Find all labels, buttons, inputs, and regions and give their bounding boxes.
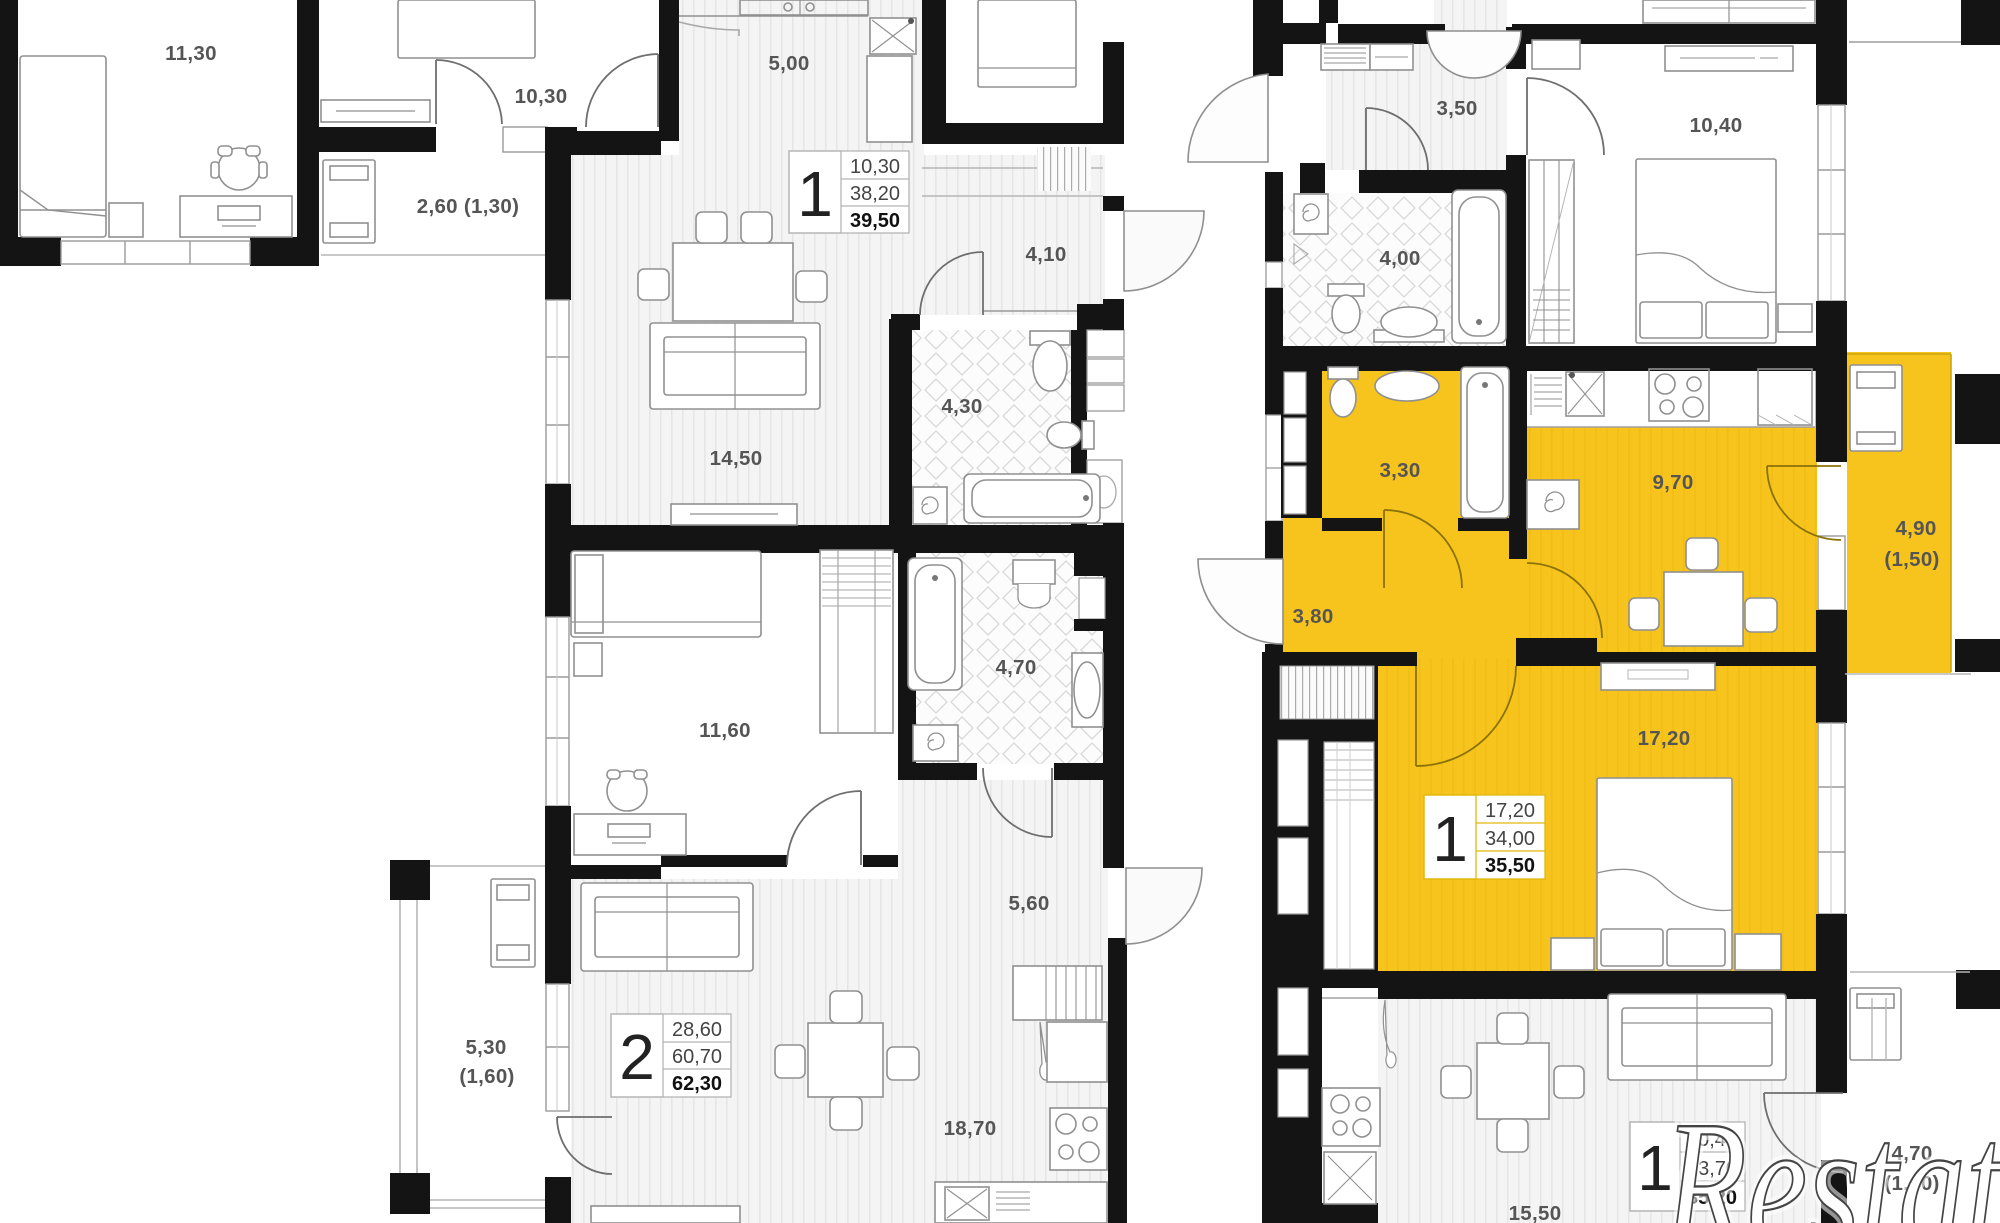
svg-text:1: 1 bbox=[797, 158, 833, 230]
svg-text:11,60: 11,60 bbox=[699, 719, 751, 742]
svg-text:35,50: 35,50 bbox=[1485, 855, 1535, 877]
svg-text:5,00: 5,00 bbox=[768, 52, 809, 75]
svg-text:60,70: 60,70 bbox=[672, 1046, 722, 1068]
svg-text:2,60 (1,30): 2,60 (1,30) bbox=[417, 195, 519, 218]
svg-text:(1,50): (1,50) bbox=[1884, 548, 1939, 571]
svg-text:9,70: 9,70 bbox=[1652, 471, 1693, 494]
svg-text:4,10: 4,10 bbox=[1025, 243, 1066, 266]
svg-text:15,50: 15,50 bbox=[1509, 1202, 1562, 1223]
svg-text:10,30: 10,30 bbox=[515, 85, 568, 108]
svg-text:34,00: 34,00 bbox=[1485, 828, 1535, 850]
svg-text:Restate: Restate bbox=[1663, 1083, 2000, 1223]
svg-text:38,20: 38,20 bbox=[850, 183, 900, 205]
svg-text:5,30: 5,30 bbox=[465, 1036, 506, 1059]
svg-text:10,40: 10,40 bbox=[1690, 114, 1743, 137]
svg-text:62,30: 62,30 bbox=[672, 1073, 722, 1095]
svg-text:3,80: 3,80 bbox=[1292, 605, 1333, 628]
svg-text:4,90: 4,90 bbox=[1895, 517, 1936, 540]
svg-text:4,00: 4,00 bbox=[1379, 247, 1420, 270]
svg-text:(1,60): (1,60) bbox=[459, 1065, 514, 1088]
svg-text:28,60: 28,60 bbox=[672, 1019, 722, 1041]
svg-text:17,20: 17,20 bbox=[1638, 727, 1691, 750]
svg-text:4,30: 4,30 bbox=[941, 395, 982, 418]
svg-text:10,30: 10,30 bbox=[850, 156, 900, 178]
svg-text:5,60: 5,60 bbox=[1008, 892, 1049, 915]
svg-text:17,20: 17,20 bbox=[1485, 800, 1535, 822]
svg-text:3,30: 3,30 bbox=[1379, 459, 1420, 482]
svg-text:2: 2 bbox=[619, 1021, 655, 1093]
svg-text:18,70: 18,70 bbox=[944, 1117, 997, 1140]
svg-text:1: 1 bbox=[1432, 803, 1468, 875]
svg-text:4,70: 4,70 bbox=[995, 656, 1036, 679]
svg-text:11,30: 11,30 bbox=[165, 42, 217, 65]
svg-text:39,50: 39,50 bbox=[850, 210, 900, 232]
svg-text:3,50: 3,50 bbox=[1436, 97, 1477, 120]
svg-text:14,50: 14,50 bbox=[710, 447, 763, 470]
